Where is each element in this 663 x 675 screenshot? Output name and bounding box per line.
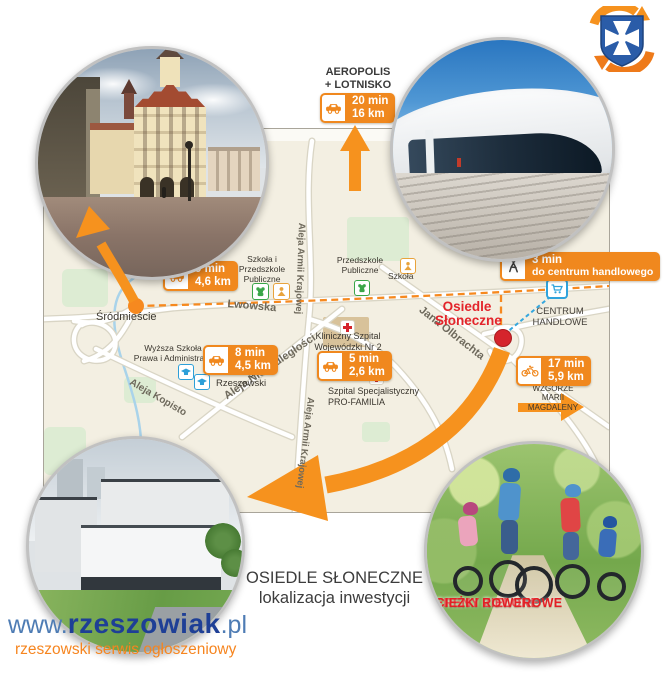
terminal-pillar: [425, 130, 435, 178]
cyclist-boy-helmet: [603, 516, 617, 528]
bike-wheel: [453, 566, 483, 596]
rzeszow-crest-icon: [584, 6, 660, 77]
cobblestone-square: [38, 197, 266, 280]
label-wzgorze: WZGÓRZE MARII MAGDALENY: [520, 384, 586, 412]
label-aeropolis: AEROPOLIS + LOTNISKO: [318, 66, 398, 92]
badge-hill-bike: 17 min5,9 km: [516, 356, 591, 386]
pedestrian-figure: [162, 187, 166, 198]
cyclist-mom: [560, 498, 581, 533]
site-url-tld: .pl: [221, 611, 247, 639]
arcade-arch: [180, 177, 194, 199]
label-szpital-pro-familia: Szpital Specjalistyczny PRO-FAMILIA: [328, 386, 419, 407]
background-tower: [57, 459, 83, 499]
investment-title: OSIEDLE SŁONECZNE lokalizacja inwestycji: [232, 568, 437, 608]
cyclist-mom-jeans: [563, 532, 579, 560]
photo-greenery-bikes: TERENY ZIELONE ŚCIEŻKI ROWEROWE: [424, 441, 644, 661]
school-icon: [273, 283, 290, 300]
cyclist-mom-helmet: [565, 484, 581, 497]
badge-airport-drive: 20 min16 km: [320, 93, 395, 123]
investment-title-line2: lokalizacja inwestycji: [232, 588, 437, 608]
bike-wheel: [597, 572, 626, 601]
kindergarten-icon: [252, 283, 269, 300]
town-hall-tower: [160, 57, 180, 87]
old-town-tenement: [90, 123, 136, 194]
site-logo: www.rzeszowiak.pl: [8, 608, 247, 640]
site-url-prefix: www.: [8, 611, 68, 639]
apartment-block-front: [81, 525, 221, 580]
cyclist-boy: [598, 528, 617, 557]
cyclist-dad: [498, 482, 522, 521]
cyclist-dad-jeans: [501, 520, 518, 554]
estate-dot: [495, 330, 512, 347]
graduation-cap-icon: [178, 364, 194, 380]
cyclist-dad-helmet: [503, 468, 520, 482]
photo-airport: [390, 37, 615, 262]
person-figure: [457, 158, 461, 167]
cyclist-girl-helmet: [463, 502, 478, 515]
photo-old-town: [35, 46, 269, 280]
cyclist-girl: [457, 515, 478, 547]
bicycle-icon: [516, 356, 543, 386]
label-osiedle-sloneczne: Osiedle Słoneczne: [435, 300, 499, 328]
label-szkola: Szkoła: [388, 271, 414, 281]
car-icon: [203, 345, 230, 375]
site-tagline: rzeszowski serwis ogłoszeniowy: [15, 641, 236, 659]
label-szpital-kliniczny: Kliniczny Szpital Wojewódzki Nr 2: [308, 331, 388, 352]
street-lamp-post: [188, 147, 191, 201]
arcade-arch: [140, 177, 154, 199]
label-przedszkole: Przedszkole Publiczne: [330, 255, 390, 275]
label-centrum-handlowe: CENTRUM HANDLOWE: [530, 306, 590, 328]
graduation-cap-icon: [194, 374, 210, 390]
infographic-canvas: Lwowska Aleja Armii Krajowej Aleja Armii…: [0, 0, 663, 675]
investment-title-line1: OSIEDLE SŁONECZNE: [232, 568, 437, 588]
shopping-cart-icon: [546, 279, 568, 299]
bike-wheel: [555, 564, 590, 599]
spire: [124, 93, 134, 119]
badge-hospital-drive: 5 min2,6 km: [317, 351, 392, 381]
site-url-name: rzeszowiak: [68, 608, 221, 639]
car-icon: [317, 351, 344, 381]
old-town-right-buildings: [208, 147, 260, 191]
car-icon: [320, 93, 347, 123]
apron-paving-lines: [393, 173, 612, 262]
kindergarten-icon: [354, 280, 370, 296]
label-wyzsza-szkola: Wyższa Szkoła Prawa i Administracji: [133, 343, 213, 363]
badge-university-drive: 8 min4,5 km: [203, 345, 278, 375]
label-srodmiescie: Śródmieście: [96, 311, 157, 324]
